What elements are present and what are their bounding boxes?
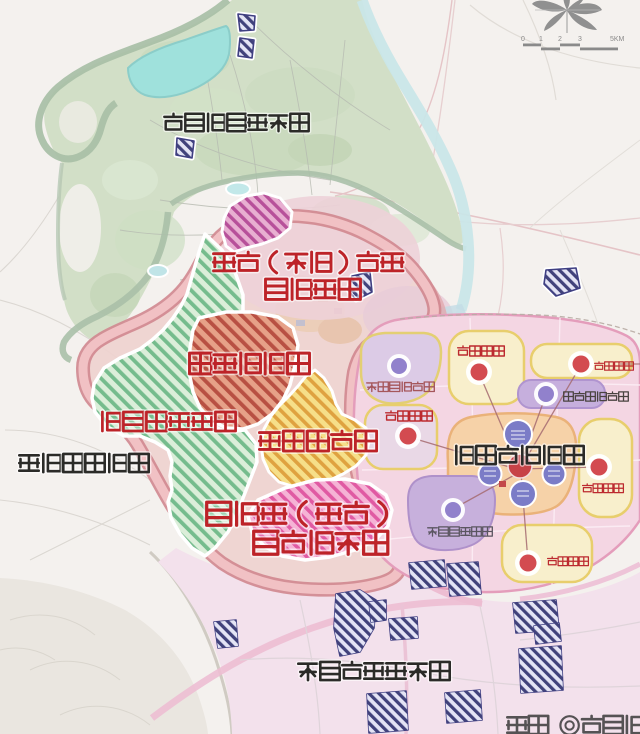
svg-text:2: 2 [558,36,562,43]
svg-text:3: 3 [578,36,582,43]
svg-text:5KM: 5KM [610,36,625,43]
svg-text:1: 1 [539,36,543,43]
svg-text:0: 0 [521,36,525,43]
